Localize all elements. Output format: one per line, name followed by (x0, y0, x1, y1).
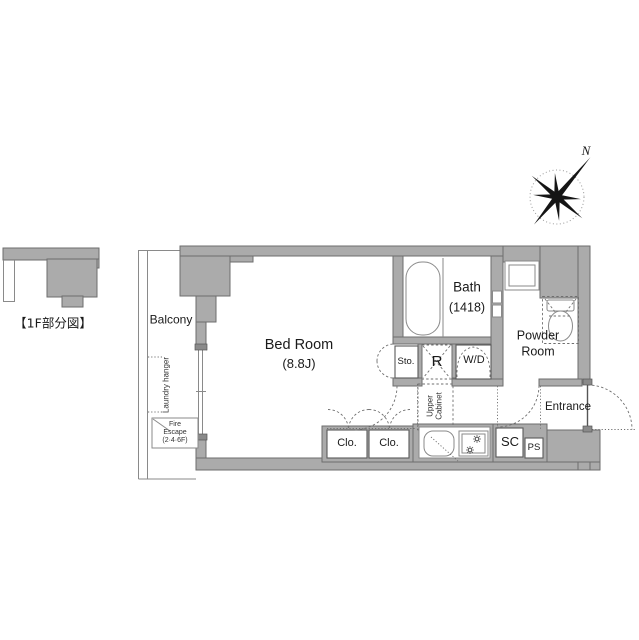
fire-escape-line3: (2·4·6F) (162, 437, 187, 445)
shoe-cabinet-label: SC (501, 435, 519, 449)
bedroom-size-label: (8.8J) (282, 357, 315, 371)
fire-escape-line1: Fire (162, 421, 187, 429)
closet-left-label: Clo. (337, 438, 357, 450)
compass-icon (530, 157, 590, 224)
balcony-label: Balcony (150, 314, 193, 327)
bathtub-icon (406, 258, 502, 337)
fire-escape-label: Fire Escape (2·4·6F) (162, 421, 187, 445)
compass-north-label: N (582, 144, 591, 158)
upper-cabinet-line2: Cabinet (435, 392, 444, 420)
closet-right-label: Clo. (379, 438, 399, 450)
refrigerator-label: R (432, 354, 443, 370)
fire-escape-line2: Escape (162, 429, 187, 437)
floor-plan-page: 【1F部分図】 N Balcony Laundry hanger Fire Es… (0, 0, 639, 640)
bath-size-label: (1418) (449, 301, 485, 315)
bedroom-name-label: Bed Room (265, 338, 334, 354)
door-swing-arcs (353, 384, 636, 430)
pipe-space-label: PS (528, 443, 541, 453)
water-heater-icon (505, 261, 539, 290)
floor-plan-drawing (0, 0, 639, 640)
powder-room-label-line2: Room (521, 345, 554, 359)
upper-cabinet-label: Upper Cabinet (426, 392, 443, 420)
overview-map-shape (3, 248, 99, 307)
stove-icon (459, 431, 488, 456)
storage-label: Sto. (398, 357, 415, 367)
washer-dryer-label: W/D (463, 355, 484, 367)
powder-room-label-line1: Powder (517, 329, 559, 343)
bath-name-label: Bath (453, 281, 481, 296)
kitchen-counter (419, 427, 490, 461)
entrance-label: Entrance (545, 401, 591, 413)
closet-boxes (327, 410, 415, 459)
overview-map-label: 【1F部分図】 (14, 316, 92, 330)
laundry-hanger-label: Laundry hanger (163, 357, 172, 413)
